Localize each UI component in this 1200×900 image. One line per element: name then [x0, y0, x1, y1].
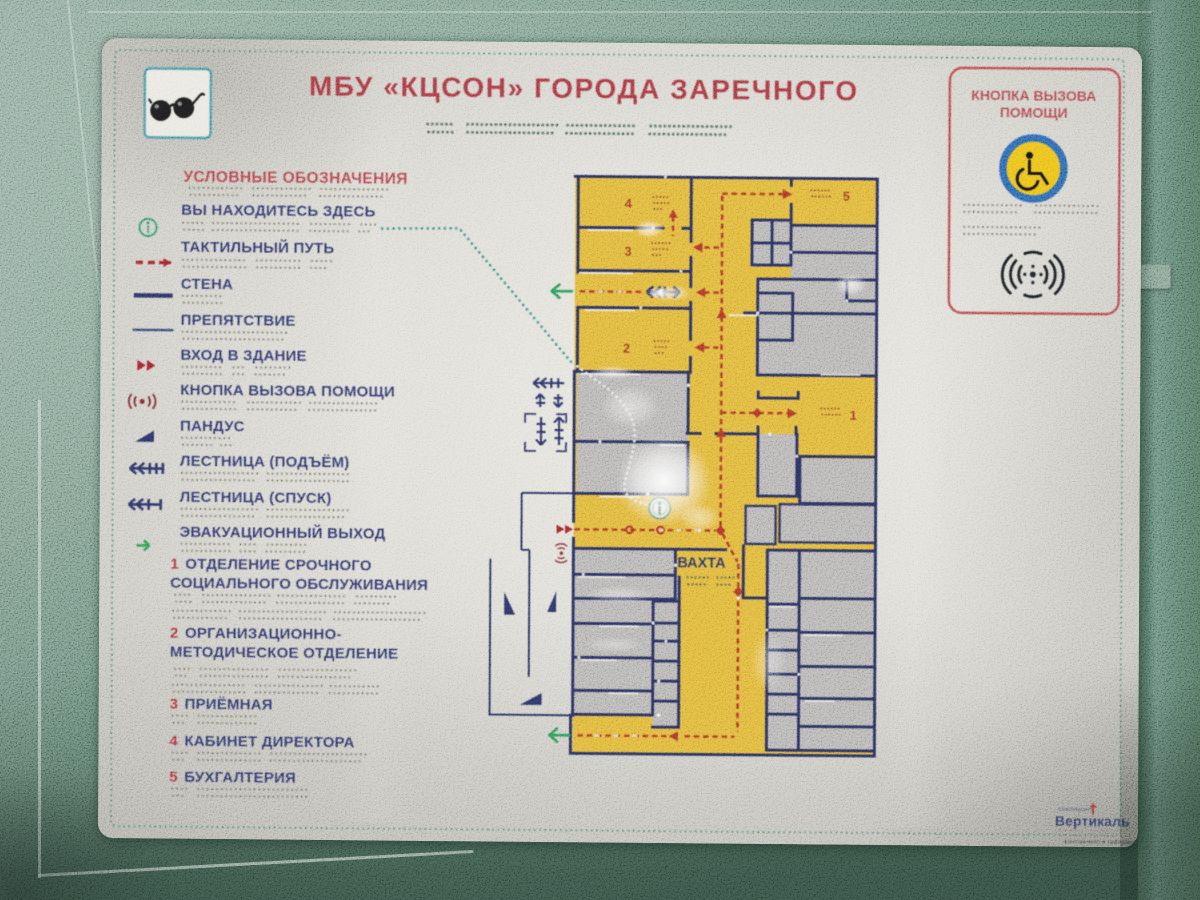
svg-text:УСЛОВНЫЕ ОБОЗНАЧЕНИЯ: УСЛОВНЫЕ ОБОЗНАЧЕНИЯ: [183, 169, 408, 188]
svg-text:ТИФЛОЦЕНТР: ТИФЛОЦЕНТР: [1058, 807, 1094, 813]
svg-text:ОРГАНИЗАЦИОННО-: ОРГАНИЗАЦИОННО-: [185, 625, 342, 643]
svg-text:2: 2: [623, 341, 630, 356]
svg-text:3: 3: [170, 696, 179, 713]
svg-text:СОЦИАЛЬНОГО ОБСЛУЖИВАНИЯ: СОЦИАЛЬНОГО ОБСЛУЖИВАНИЯ: [170, 575, 428, 594]
svg-text:3: 3: [624, 244, 631, 259]
svg-text:КНОПКА ВЫЗОВА ПОМОЩИ: КНОПКА ВЫЗОВА ПОМОЩИ: [180, 382, 395, 401]
svg-text:ВАХТА: ВАХТА: [677, 555, 726, 571]
svg-text:СТЕНА: СТЕНА: [181, 276, 233, 293]
svg-text:2: 2: [170, 625, 179, 642]
svg-text:МБУ «КЦСОН» ГОРОДА ЗАРЕЧНОГО: МБУ «КЦСОН» ГОРОДА ЗАРЕЧНОГО: [309, 70, 859, 106]
svg-text:ПАНДУС: ПАНДУС: [180, 418, 245, 436]
svg-text:4: 4: [169, 733, 178, 750]
svg-text:Вертикаль: Вертикаль: [1055, 814, 1130, 830]
svg-text:КАБИНЕТ ДИРЕКТОРА: КАБИНЕТ ДИРЕКТОРА: [184, 733, 354, 752]
svg-text:ПРИЁМНАЯ: ПРИЁМНАЯ: [185, 696, 273, 714]
svg-text:ВХОД В ЗДАНИЕ: ВХОД В ЗДАНИЕ: [180, 347, 306, 365]
svg-text:ЛЕСТНИЦА (СПУСК): ЛЕСТНИЦА (СПУСК): [180, 489, 332, 507]
svg-text:5: 5: [843, 189, 850, 204]
svg-text:ОТДЕЛЕНИЕ СРОЧНОГО: ОТДЕЛЕНИЕ СРОЧНОГО: [185, 556, 372, 575]
svg-text:ВЫ НАХОДИТЕСЬ ЗДЕСЬ: ВЫ НАХОДИТЕСЬ ЗДЕСЬ: [181, 202, 375, 221]
svg-text:КНОПКА ВЫЗОВА: КНОПКА ВЫЗОВА: [971, 87, 1096, 104]
svg-text:1: 1: [170, 556, 179, 573]
svg-text:ЭВАКУАЦИОННЫЙ ВЫХОД: ЭВАКУАЦИОННЫЙ ВЫХОД: [179, 523, 385, 543]
svg-text:ПОМОЩИ: ПОМОЩИ: [1000, 104, 1068, 121]
svg-text:ТАКТИЛЬНЫЙ ПУТЬ: ТАКТИЛЬНЫЙ ПУТЬ: [181, 238, 334, 257]
svg-text:ЛЕСТНИЦА (ПОДЪЁМ): ЛЕСТНИЦА (ПОДЪЁМ): [180, 453, 350, 472]
svg-text:БУХГАЛТЕРИЯ: БУХГАЛТЕРИЯ: [184, 769, 296, 787]
svg-text:ПРЕПЯТСТВИЕ: ПРЕПЯТСТВИЕ: [181, 312, 296, 330]
svg-text:1: 1: [850, 408, 857, 423]
svg-text:МЕТОДИЧЕСКОЕ ОТДЕЛЕНИЕ: МЕТОДИЧЕСКОЕ ОТДЕЛЕНИЕ: [170, 644, 398, 663]
svg-text:4: 4: [625, 196, 633, 211]
svg-text:5: 5: [169, 769, 178, 786]
